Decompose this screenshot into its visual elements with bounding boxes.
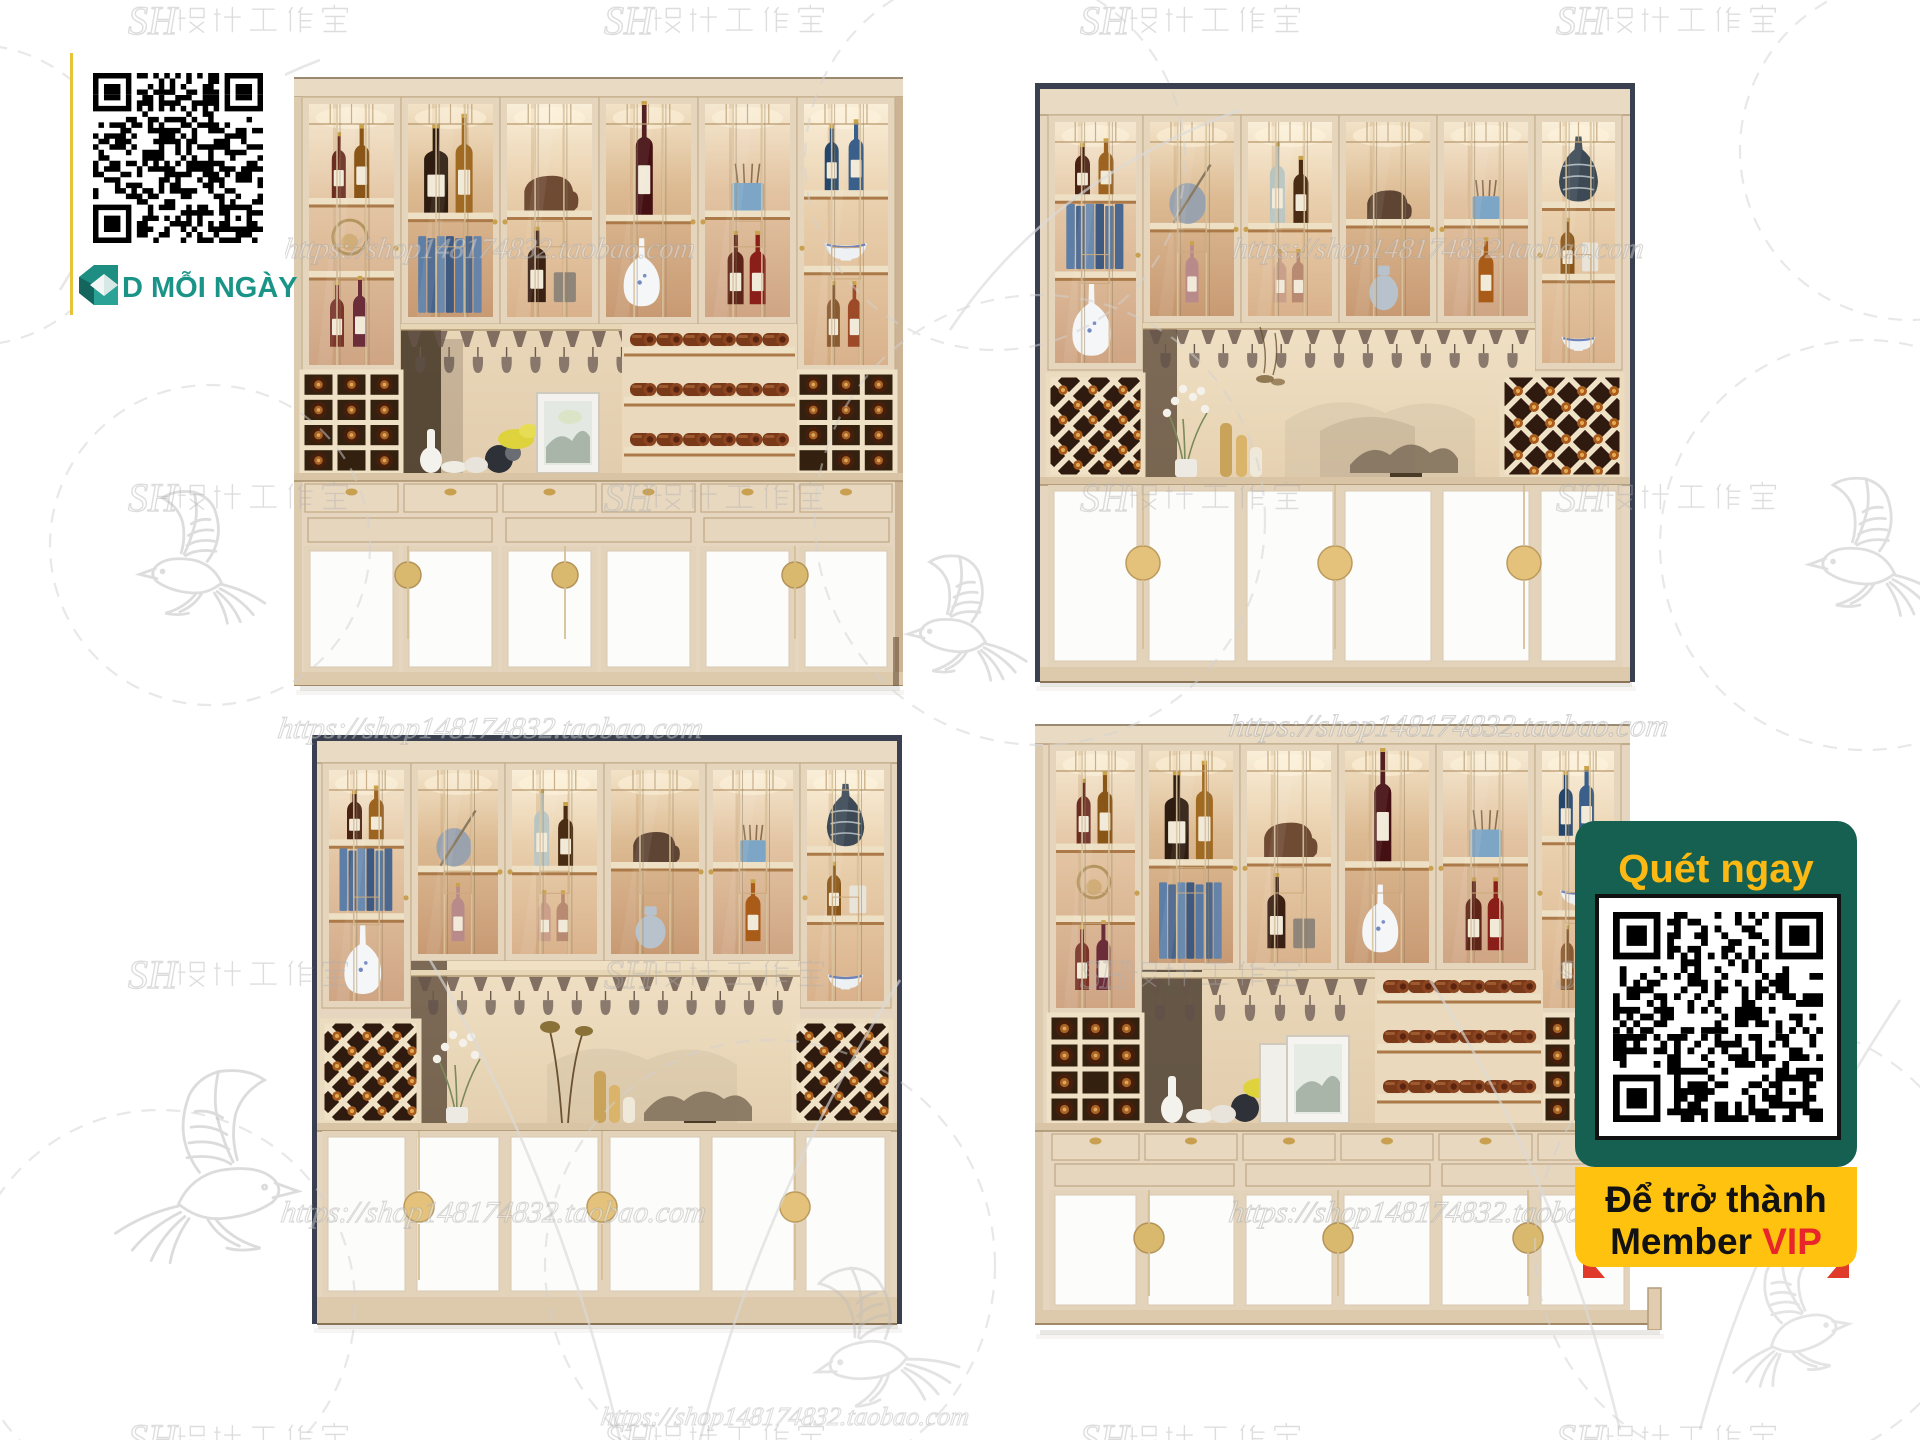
svg-text:Để trở thành: Để trở thành — [1605, 1179, 1827, 1220]
svg-text:SH: SH — [128, 475, 179, 520]
svg-text:SH: SH — [604, 0, 655, 43]
svg-text:https://shop148174832.taobao.c: https://shop148174832.taobao.com — [599, 1402, 971, 1431]
svg-text:SH: SH — [1556, 0, 1607, 43]
svg-text:SH: SH — [604, 475, 655, 520]
svg-text:SH: SH — [1080, 0, 1131, 43]
svg-text:SH: SH — [1080, 475, 1131, 520]
svg-text:SH: SH — [128, 0, 179, 43]
svg-text:SH: SH — [604, 952, 655, 997]
svg-text:https://shop148174832.taobao.c: https://shop148174832.taobao.com — [279, 1195, 708, 1229]
svg-text:Quét ngay: Quét ngay — [1618, 847, 1814, 891]
svg-text:https://shop148174832.taobao.c: https://shop148174832.taobao.com — [1227, 708, 1671, 743]
svg-text:https://shop148174832.taobao.c: https://shop148174832.taobao.com — [282, 233, 697, 265]
svg-text:D MỖI NGÀY: D MỖI NGÀY — [122, 270, 298, 304]
svg-text:https://shop148174832.taobao.c: https://shop148174832.taobao.com — [276, 711, 705, 745]
svg-text:SH: SH — [1080, 952, 1131, 997]
svg-text:SH: SH — [128, 952, 179, 997]
svg-text:https://shop148174832.taobao.c: https://shop148174832.taobao.com — [1231, 233, 1646, 265]
svg-text:SH: SH — [1556, 1416, 1607, 1440]
svg-text:SH: SH — [1080, 1416, 1131, 1440]
svg-text:SH: SH — [128, 1416, 179, 1440]
svg-text:Member VIP: Member VIP — [1610, 1221, 1822, 1262]
svg-text:SH: SH — [1556, 475, 1607, 520]
